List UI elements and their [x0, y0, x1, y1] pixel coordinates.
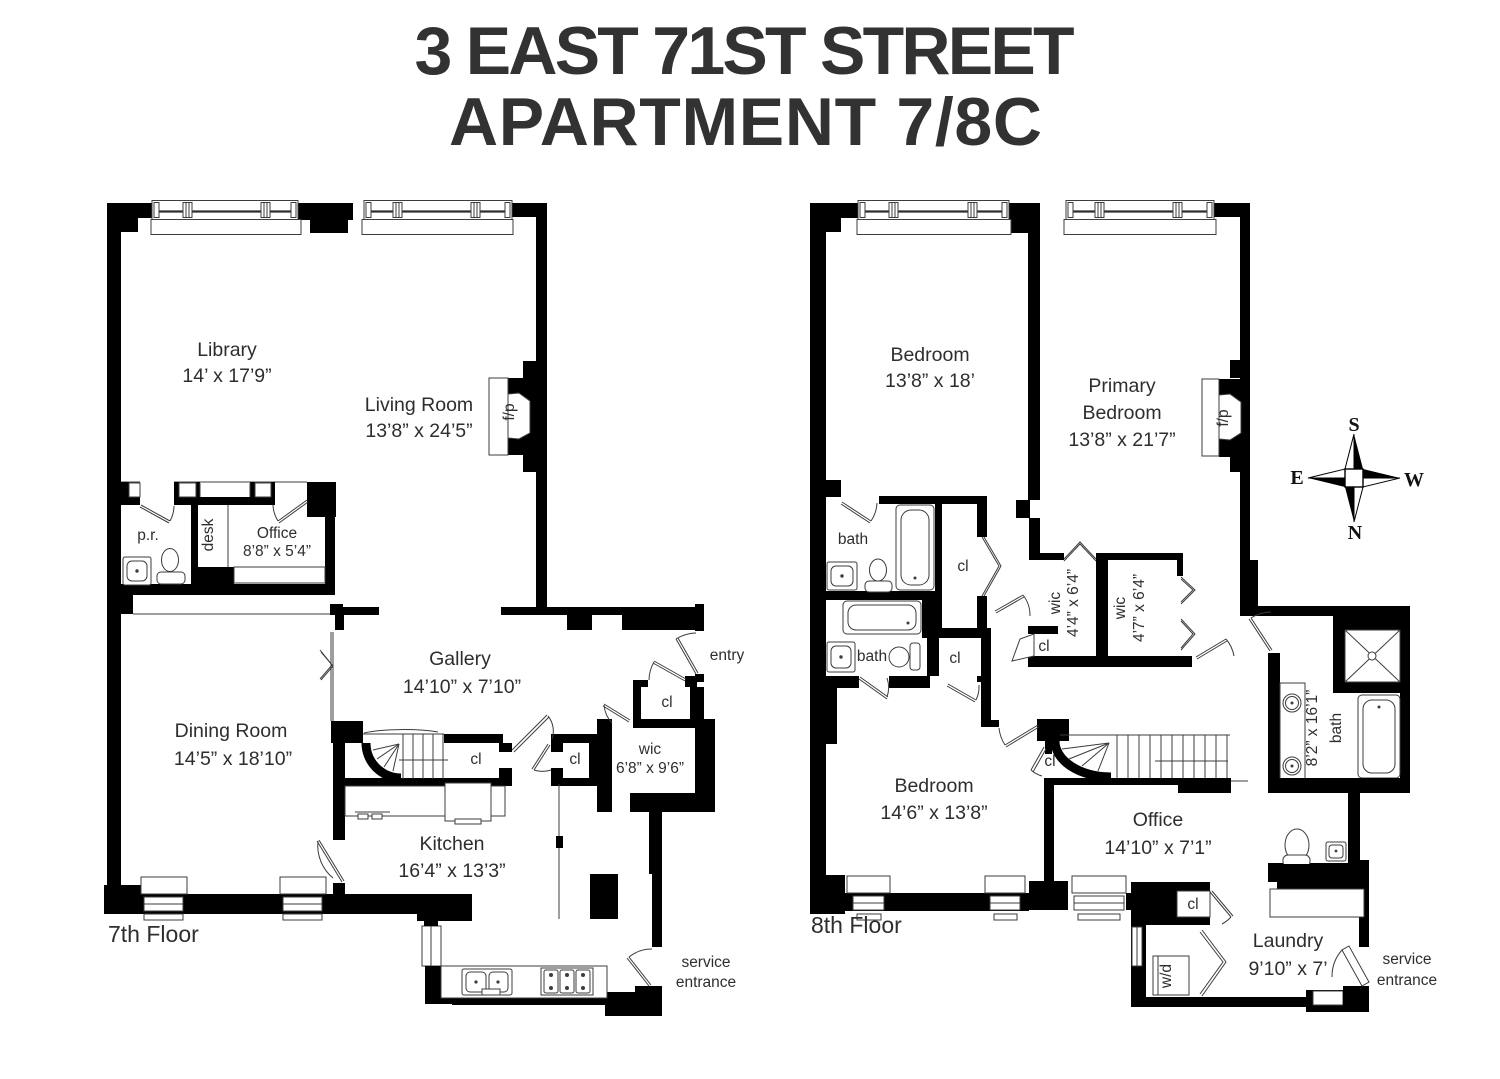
svg-text:8’2” x 16’1”: 8’2” x 16’1” [1304, 690, 1321, 767]
svg-text:cl: cl [569, 751, 580, 768]
svg-text:bath: bath [838, 531, 868, 548]
svg-text:Gallery: Gallery [429, 648, 491, 670]
svg-text:desk: desk [200, 518, 217, 551]
svg-text:service: service [1382, 951, 1431, 968]
svg-text:7th Floor: 7th Floor [108, 921, 199, 947]
svg-text:Dining Room: Dining Room [175, 720, 288, 742]
svg-text:14’ x 17’9”: 14’ x 17’9” [182, 365, 271, 387]
svg-text:cl: cl [957, 558, 968, 575]
svg-text:Primary: Primary [1088, 375, 1155, 397]
svg-text:E: E [1290, 467, 1303, 489]
svg-text:Bedroom: Bedroom [890, 344, 969, 366]
svg-text:3 EAST 71ST STREET: 3 EAST 71ST STREET [415, 13, 1076, 89]
svg-text:13’8” x 24’5”: 13’8” x 24’5” [365, 420, 472, 442]
svg-text:Bedroom: Bedroom [894, 775, 973, 797]
svg-text:f/p: f/p [501, 403, 518, 420]
svg-text:cl: cl [1187, 896, 1198, 913]
svg-text:W: W [1404, 469, 1424, 491]
svg-text:Laundry: Laundry [1253, 930, 1324, 952]
svg-text:14’6” x 13’8”: 14’6” x 13’8” [880, 802, 987, 824]
svg-text:f/p: f/p [1215, 409, 1232, 426]
svg-text:N: N [1348, 522, 1363, 544]
svg-text:Office: Office [257, 525, 297, 542]
svg-text:p.r.: p.r. [137, 527, 159, 544]
svg-text:cl: cl [470, 751, 481, 768]
svg-text:13’8” x 21’7”: 13’8” x 21’7” [1068, 429, 1175, 451]
svg-text:4’7” x 6’4”: 4’7” x 6’4” [1131, 574, 1148, 642]
svg-text:13’8” x 18’: 13’8” x 18’ [885, 370, 975, 392]
svg-text:Library: Library [197, 339, 257, 361]
svg-text:9’10” x 7’: 9’10” x 7’ [1248, 958, 1327, 980]
svg-text:S: S [1348, 414, 1359, 436]
svg-text:bath: bath [857, 648, 887, 665]
svg-text:14’10” x 7’1”: 14’10” x 7’1” [1104, 837, 1211, 859]
svg-text:14’5” x 18’10”: 14’5” x 18’10” [174, 748, 292, 770]
svg-text:4’4” x 6’4”: 4’4” x 6’4” [1065, 569, 1082, 637]
svg-text:entry: entry [710, 647, 745, 664]
svg-text:cl: cl [1044, 753, 1055, 770]
svg-text:bath: bath [1328, 713, 1345, 743]
svg-text:Office: Office [1133, 809, 1184, 831]
svg-text:entrance: entrance [676, 974, 736, 991]
svg-text:14’10” x 7’10”: 14’10” x 7’10” [403, 676, 521, 698]
svg-text:entrance: entrance [1377, 972, 1437, 989]
svg-text:Living Room: Living Room [365, 394, 473, 416]
svg-text:6’8” x 9’6”: 6’8” x 9’6” [616, 760, 684, 777]
svg-text:service: service [681, 954, 730, 971]
svg-text:cl: cl [949, 650, 960, 667]
svg-text:w/d: w/d [1158, 964, 1175, 989]
svg-text:Bedroom: Bedroom [1082, 402, 1161, 424]
svg-text:APARTMENT 7/8C: APARTMENT 7/8C [449, 84, 1043, 160]
svg-text:16’4” x 13’3”: 16’4” x 13’3” [398, 860, 505, 882]
svg-text:8’8” x 5’4”: 8’8” x 5’4” [243, 543, 311, 560]
svg-text:cl: cl [661, 694, 672, 711]
svg-text:cl: cl [1038, 638, 1049, 655]
svg-text:8th Floor: 8th Floor [811, 912, 902, 938]
svg-text:Kitchen: Kitchen [419, 833, 484, 855]
svg-text:wic: wic [638, 741, 662, 758]
svg-text:wic: wic [1047, 592, 1064, 616]
svg-text:wic: wic [1112, 597, 1129, 621]
